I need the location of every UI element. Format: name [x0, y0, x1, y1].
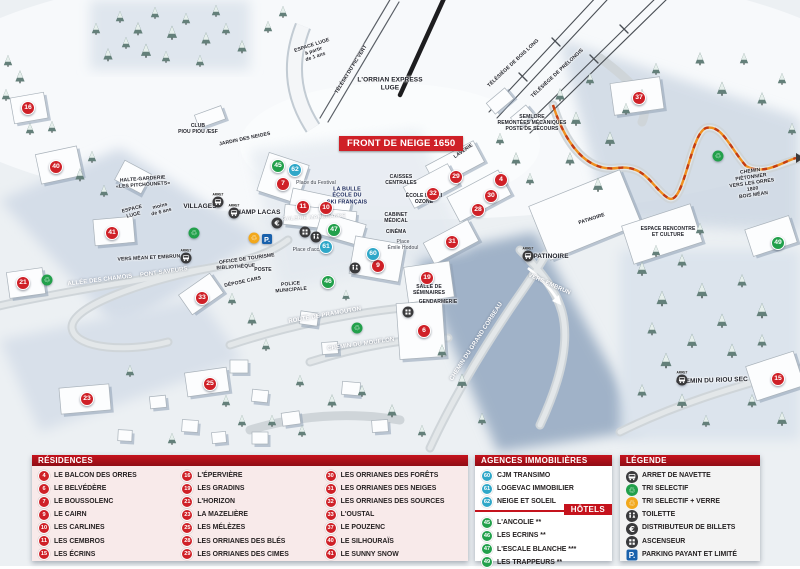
map-marker-31: 31: [445, 235, 459, 249]
legend-item-45: 45L'ANCOLIE **: [481, 516, 612, 529]
legend-number: 46: [481, 530, 493, 542]
legend-item-40: 40LE SILHOURAÏS: [325, 534, 468, 547]
legend-label: LE BOUSSOLENC: [54, 498, 113, 505]
legend-label: L'ANCOLIE **: [497, 519, 541, 526]
legend-number: 25: [181, 522, 193, 534]
legend-number: 61: [481, 483, 493, 495]
legend-label: LES ORRIANES DES SOURCES: [341, 498, 445, 505]
legend-number: 29: [181, 548, 193, 560]
legend-number: 33: [325, 509, 337, 521]
map-label: SALLE DE SÉMINAIRES: [413, 285, 445, 297]
legende-header: LÉGENDE: [620, 455, 760, 466]
legend-item-11: 11LES CEMBROS: [38, 534, 181, 547]
legend-item-6: 6LE BELVÉDÈRE: [38, 482, 181, 495]
legend-item-4: 4LE BALCON DES ORRES: [38, 469, 181, 482]
legend-item-31: 31LES ORRIANES DES NEIGES: [325, 482, 468, 495]
map-marker-46: 46: [321, 275, 335, 289]
euro-icon: €: [626, 522, 638, 534]
svg-text:♲: ♲: [628, 485, 635, 494]
legend-label: LOGEVAC IMMOBILIER: [497, 485, 574, 492]
legend-item-toilet: TOILETTE: [626, 508, 760, 521]
svg-text:♲: ♲: [715, 152, 722, 161]
legend-item-19: 19LES GRADINS: [181, 482, 324, 495]
map-label: SEMLORE REMONTÉES MÉCANIQUES POSTE DE SE…: [498, 115, 567, 133]
legend-number: 21: [181, 496, 193, 508]
legend-label: LE BALCON DES ORRES: [54, 472, 137, 479]
map-marker-40: 40: [49, 160, 63, 174]
map-marker-47: 47: [327, 223, 341, 237]
legend-label: PARKING PAYANT ET LIMITÉ: [642, 551, 737, 558]
svg-text:♲: ♲: [251, 234, 258, 243]
legend-item-32: 32LES ORRIANES DES SOURCES: [325, 495, 468, 508]
toilet-icon: [350, 263, 361, 274]
map-label: L'ORRIAN EXPRESS LUGE: [357, 76, 422, 91]
legend-item-33: 33L'OUSTAL: [325, 508, 468, 521]
legend-item-47: 47L'ESCALE BLANCHE ***: [481, 542, 612, 555]
agences-panel: AGENCES IMMOBILIÈRES 60CJM TRANSIMO61LOG…: [475, 455, 612, 561]
map-marker-49: 49: [771, 236, 785, 250]
map-label: ESPACE RENCONTRE ET CULTURE: [641, 227, 696, 239]
legend-number: 11: [38, 535, 50, 547]
legend-item-10: 10LES CARLINES: [38, 521, 181, 534]
legend-label: DISTRIBUTEUR DE BILLETS: [642, 524, 735, 531]
legend-number: 41: [325, 548, 337, 560]
legend-item-37: 37LE POUZENC: [325, 521, 468, 534]
legend-item-46: 46LES ECRINS **: [481, 529, 612, 542]
legend-number: 15: [38, 548, 50, 560]
legend-label: LES TRAPPEURS **: [497, 559, 562, 566]
legend-label: ASCENSEUR: [642, 538, 685, 545]
legend-label: LE CAIRN: [54, 511, 87, 518]
map-label: GENDARMERIE: [419, 300, 458, 306]
map-marker-25: 25: [203, 377, 217, 391]
map-marker-10: 10: [319, 201, 333, 215]
map-marker-23: 23: [80, 392, 94, 406]
toilet-icon: [626, 509, 638, 521]
legend-label: LES CARLINES: [54, 524, 105, 531]
legend-label: NEIGE ET SOLEIL: [497, 498, 556, 505]
legend-number: 62: [481, 496, 493, 508]
toilet-icon: [311, 232, 322, 243]
map-marker-9: 9: [371, 259, 385, 273]
map-marker-29: 29: [449, 170, 463, 184]
legend-label: TRI SELECTIF + VERRE: [642, 498, 720, 505]
legend-label: LE BELVÉDÈRE: [54, 485, 106, 492]
recycle-green-icon: ♲: [189, 228, 200, 239]
legend-label: L'HORIZON: [197, 498, 235, 505]
legend-item-23: 23LA MAZELIÈRE: [181, 508, 324, 521]
map-label: CABINET MÉDICAL: [384, 213, 407, 225]
legende-panel: LÉGENDE ARRET DE NAVETTE♲TRI SELECTIF♲TR…: [620, 455, 760, 561]
svg-text:€: €: [628, 525, 635, 534]
map-label: CAISSES CENTRALES: [385, 175, 416, 187]
recycle-orange-icon: ♲: [626, 496, 638, 508]
svg-text:P.: P.: [264, 235, 270, 244]
legend-label: LE SILHOURAÏS: [341, 538, 394, 545]
legend-item-euro: €DISTRIBUTEUR DE BILLETS: [626, 521, 760, 534]
legend-item-21: 21L'HORIZON: [181, 495, 324, 508]
map-marker-61: 61: [319, 240, 333, 254]
residences-panel: RÉSIDENCES 4LE BALCON DES ORRES6LE BELVÉ…: [32, 455, 468, 561]
legend-label: L'ÉPERVIÈRE: [197, 472, 242, 479]
legend-label: ARRET DE NAVETTE: [642, 472, 711, 479]
residences-header: RÉSIDENCES: [32, 455, 468, 466]
legend-item-41: 41LE SUNNY SNOW: [325, 548, 468, 561]
bus-icon: ARRET: [677, 375, 688, 386]
hotels-divider: HÔTELS: [475, 510, 612, 512]
legend-item-recycle-green: ♲TRI SELECTIF: [626, 482, 760, 495]
elevator-icon: [626, 535, 638, 547]
legend-number: 28: [181, 535, 193, 547]
legend-label: LES ÉCRINS: [54, 551, 95, 558]
parking-icon: P.: [262, 234, 273, 245]
legend-number: 45: [481, 517, 493, 529]
legend-label: TOILETTE: [642, 511, 675, 518]
map-marker-7: 7: [276, 177, 290, 191]
recycle-orange-icon: ♲: [249, 233, 260, 244]
recycle-green-icon: ♲: [42, 275, 53, 286]
map-marker-6: 6: [417, 324, 431, 338]
map-marker-62: 62: [288, 163, 302, 177]
bus-icon: ARRET: [229, 208, 240, 219]
svg-text:♲: ♲: [191, 229, 198, 238]
map-marker-28: 28: [471, 203, 485, 217]
legend-label: LES MÉLÈZES: [197, 524, 245, 531]
map-marker-37: 37: [632, 91, 646, 105]
legend-item-recycle-orange: ♲TRI SELECTIF + VERRE: [626, 495, 760, 508]
map-marker-11: 11: [296, 200, 310, 214]
bus-icon: ARRET: [213, 197, 224, 208]
map-label: Place Émile Hodoul: [388, 240, 419, 252]
legend-item-28: 28LES ORRIANES DES BLÉS: [181, 534, 324, 547]
legend-number: 40: [325, 535, 337, 547]
legend-label: LES ORRIANES DES NEIGES: [341, 485, 437, 492]
legend-item-9: 9LE CAIRN: [38, 508, 181, 521]
map-marker-32: 32: [426, 187, 440, 201]
map-label: CLUB PIOU PIOU /ESF: [178, 124, 218, 136]
map-marker-15: 15: [771, 372, 785, 386]
map-marker-16: 16: [21, 101, 35, 115]
map-label: Place du Festival: [296, 181, 336, 187]
legend-number: 47: [481, 543, 493, 555]
legend-label: LES CEMBROS: [54, 538, 105, 545]
parking-icon: P.: [626, 548, 638, 560]
residences-column-3: 30LES ORRIANES DES FORÊTS31LES ORRIANES …: [325, 469, 468, 561]
legend-label: LE SUNNY SNOW: [341, 551, 399, 558]
legend-label: CJM TRANSIMO: [497, 472, 550, 479]
bus-icon: ARRET: [523, 251, 534, 262]
legend-label: LES ECRINS **: [497, 532, 546, 539]
legend-label: LES ORRIANES DES FORÊTS: [341, 472, 439, 479]
legend-number: 49: [481, 556, 493, 568]
legend-number: 31: [325, 483, 337, 495]
map-marker-4: 4: [494, 173, 508, 187]
legend-label: L'ESCALE BLANCHE ***: [497, 546, 576, 553]
legend-number: 60: [481, 470, 493, 482]
legend-label: TRI SELECTIF: [642, 485, 688, 492]
map-marker-45: 45: [271, 159, 285, 173]
legend-number: 7: [38, 496, 50, 508]
legend-label: L'OUSTAL: [341, 511, 375, 518]
legend-number: 9: [38, 509, 50, 521]
legend-label: LES ORRIANES DES CIMES: [197, 551, 289, 558]
legend-item-7: 7LE BOUSSOLENC: [38, 495, 181, 508]
legend-item-16: 16L'ÉPERVIÈRE: [181, 469, 324, 482]
elevator-icon: [300, 227, 311, 238]
map-marker-30: 30: [484, 189, 498, 203]
svg-text:♲: ♲: [354, 324, 361, 333]
recycle-green-icon: ♲: [626, 483, 638, 495]
elevator-icon: [403, 307, 414, 318]
legend-number: 19: [181, 483, 193, 495]
map-label: LA BULLE ÉCOLE DU SKI FRANÇAIS: [327, 186, 367, 205]
legend-number: 10: [38, 522, 50, 534]
recycle-green-icon: ♲: [352, 323, 363, 334]
legend-number: 4: [38, 470, 50, 482]
map-label: CINÉMA: [386, 230, 406, 236]
svg-text:P.: P.: [629, 551, 636, 560]
recycle-green-icon: ♲: [713, 151, 724, 162]
euro-icon: €: [272, 218, 283, 229]
map-label: POSTE: [254, 268, 271, 274]
residences-column-2: 16L'ÉPERVIÈRE19LES GRADINS21L'HORIZON23L…: [181, 469, 324, 561]
legend-label: LES ORRIANES DES BLÉS: [197, 538, 285, 545]
legend-number: 32: [325, 496, 337, 508]
legend-item-30: 30LES ORRIANES DES FORÊTS: [325, 469, 468, 482]
legend-number: 16: [181, 470, 193, 482]
legend-number: 6: [38, 483, 50, 495]
legend-label: LA MAZELIÈRE: [197, 511, 248, 518]
svg-text:♲: ♲: [628, 499, 635, 508]
legend-item-parking: P.PARKING PAYANT ET LIMITÉ: [626, 548, 760, 561]
legend-item-bus: ARRET DE NAVETTE: [626, 469, 760, 482]
svg-text:♲: ♲: [44, 276, 51, 285]
legend-item-15: 15LES ÉCRINS: [38, 548, 181, 561]
legend-item-49: 49LES TRAPPEURS **: [481, 556, 612, 569]
legend-number: 30: [325, 470, 337, 482]
front-de-neige-banner: FRONT DE NEIGE 1650: [339, 136, 463, 151]
residences-column-1: 4LE BALCON DES ORRES6LE BELVÉDÈRE7LE BOU…: [38, 469, 181, 561]
legend-item-60: 60CJM TRANSIMO: [481, 469, 612, 482]
bus-icon: ARRET: [181, 253, 192, 264]
map-marker-19: 19: [420, 271, 434, 285]
legend-number: 37: [325, 522, 337, 534]
legend-label: LES GRADINS: [197, 485, 244, 492]
svg-text:€: €: [273, 219, 279, 228]
legend-item-25: 25LES MÉLÈZES: [181, 521, 324, 534]
legend-label: LE POUZENC: [341, 524, 385, 531]
map-marker-21: 21: [16, 276, 30, 290]
legend-item-61: 61LOGEVAC IMMOBILIER: [481, 482, 612, 495]
map-marker-41: 41: [105, 226, 119, 240]
hotels-header: HÔTELS: [564, 504, 612, 515]
map-label: PATINOIRE: [533, 253, 568, 261]
map-marker-33: 33: [195, 291, 209, 305]
bus-icon: [626, 470, 638, 482]
resort-map-les-orres-1650: FRONT DE NEIGE 1650 RÉSIDENCES 4LE BALCO…: [0, 0, 800, 566]
legend-item-elevator: ASCENSEUR: [626, 534, 760, 547]
map-marker-60: 60: [366, 247, 380, 261]
legend-item-29: 29LES ORRIANES DES CIMES: [181, 548, 324, 561]
agences-header: AGENCES IMMOBILIÈRES: [475, 455, 612, 466]
legend-number: 23: [181, 509, 193, 521]
